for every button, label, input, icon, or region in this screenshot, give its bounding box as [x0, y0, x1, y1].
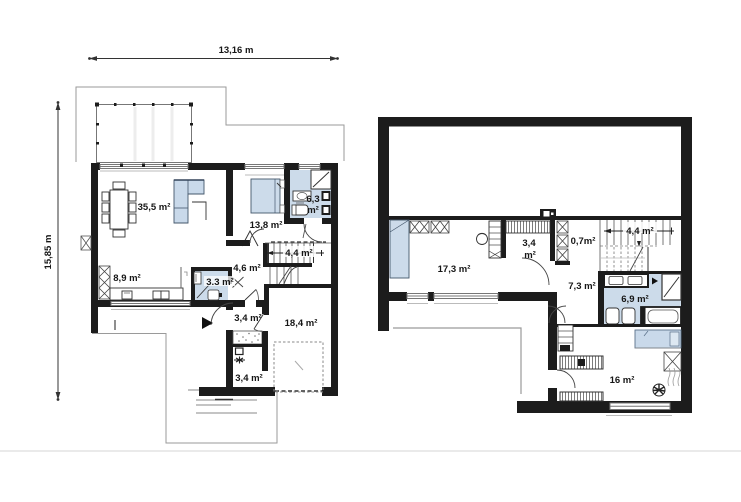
svg-text:3,4 m²: 3,4 m² — [235, 373, 262, 384]
svg-text:4,4 m²: 4,4 m² — [285, 248, 312, 259]
svg-text:m²: m² — [307, 205, 319, 216]
svg-text:3,4 m²: 3,4 m² — [234, 313, 261, 324]
svg-text:8,9 m²: 8,9 m² — [113, 273, 140, 284]
svg-text:18,4 m²: 18,4 m² — [285, 318, 318, 329]
svg-text:4,6 m²: 4,6 m² — [233, 263, 260, 274]
svg-text:6,3: 6,3 — [306, 194, 319, 205]
svg-text:m²: m² — [524, 250, 536, 261]
svg-text:7,3 m²: 7,3 m² — [568, 281, 595, 292]
svg-text:35,5 m²: 35,5 m² — [138, 202, 171, 213]
svg-text:0,7m²: 0,7m² — [571, 236, 596, 247]
svg-text:16 m²: 16 m² — [610, 375, 635, 386]
svg-text:13,8 m²: 13,8 m² — [250, 220, 283, 231]
svg-text:15,85 m: 15,85 m — [43, 235, 54, 270]
svg-text:6,9 m²: 6,9 m² — [621, 294, 648, 305]
svg-text:3.3 m²: 3.3 m² — [206, 277, 233, 288]
svg-text:3,4: 3,4 — [522, 238, 536, 249]
svg-text:4,4 m²: 4,4 m² — [626, 226, 653, 237]
svg-text:13,16 m: 13,16 m — [219, 45, 254, 56]
svg-text:17,3 m²: 17,3 m² — [438, 264, 471, 275]
